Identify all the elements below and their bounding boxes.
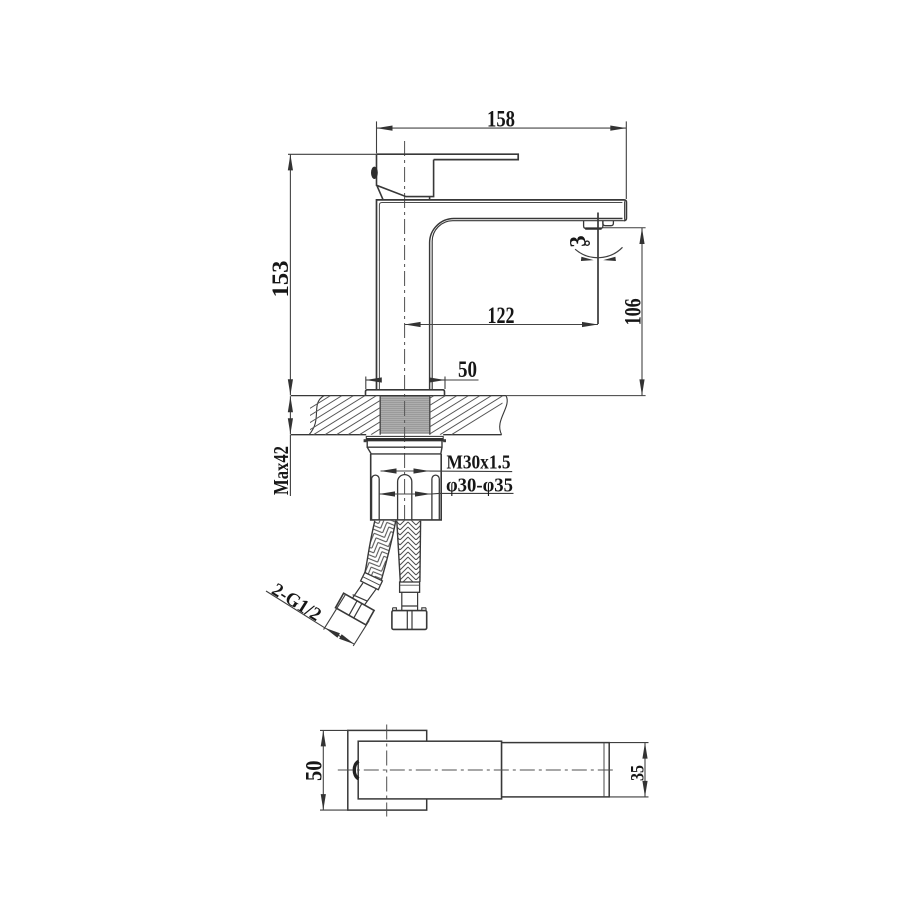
svg-text:35: 35	[627, 765, 648, 781]
svg-text:106: 106	[620, 298, 645, 325]
svg-text:50: 50	[458, 357, 477, 382]
svg-text:122: 122	[488, 303, 515, 328]
svg-text:50: 50	[301, 761, 326, 782]
svg-text:φ30-φ35: φ30-φ35	[446, 476, 513, 497]
svg-text:Max42: Max42	[269, 446, 293, 495]
svg-text:M30x1.5: M30x1.5	[447, 453, 511, 474]
svg-text:153: 153	[268, 261, 293, 298]
svg-text:158: 158	[487, 107, 515, 132]
